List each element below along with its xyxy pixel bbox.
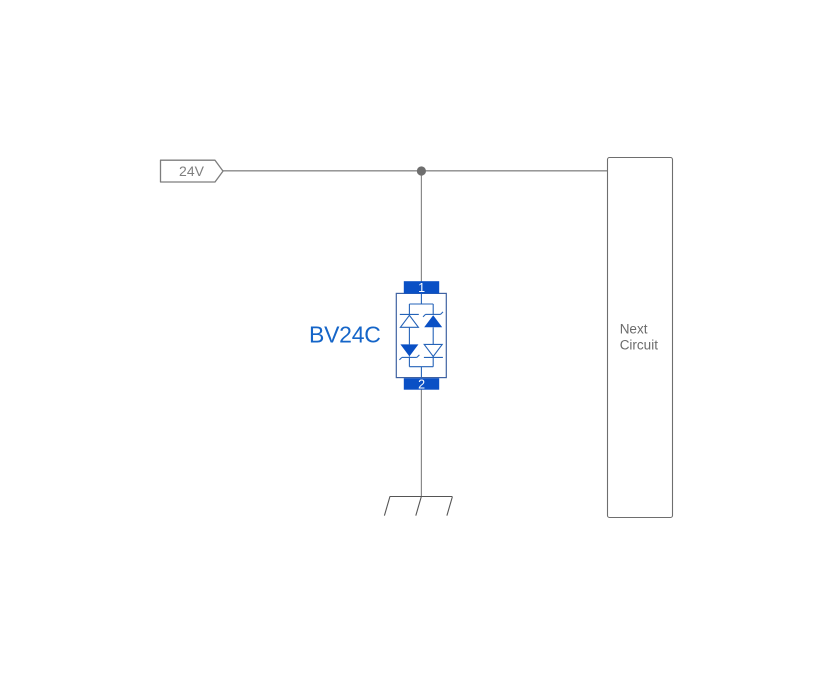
svg-text:Circuit: Circuit	[620, 338, 659, 353]
svg-text:2: 2	[418, 378, 425, 392]
svg-text:1: 1	[418, 281, 425, 295]
svg-text:BV24C: BV24C	[309, 322, 381, 348]
svg-text:Next: Next	[620, 322, 648, 337]
svg-text:24V: 24V	[179, 163, 205, 179]
